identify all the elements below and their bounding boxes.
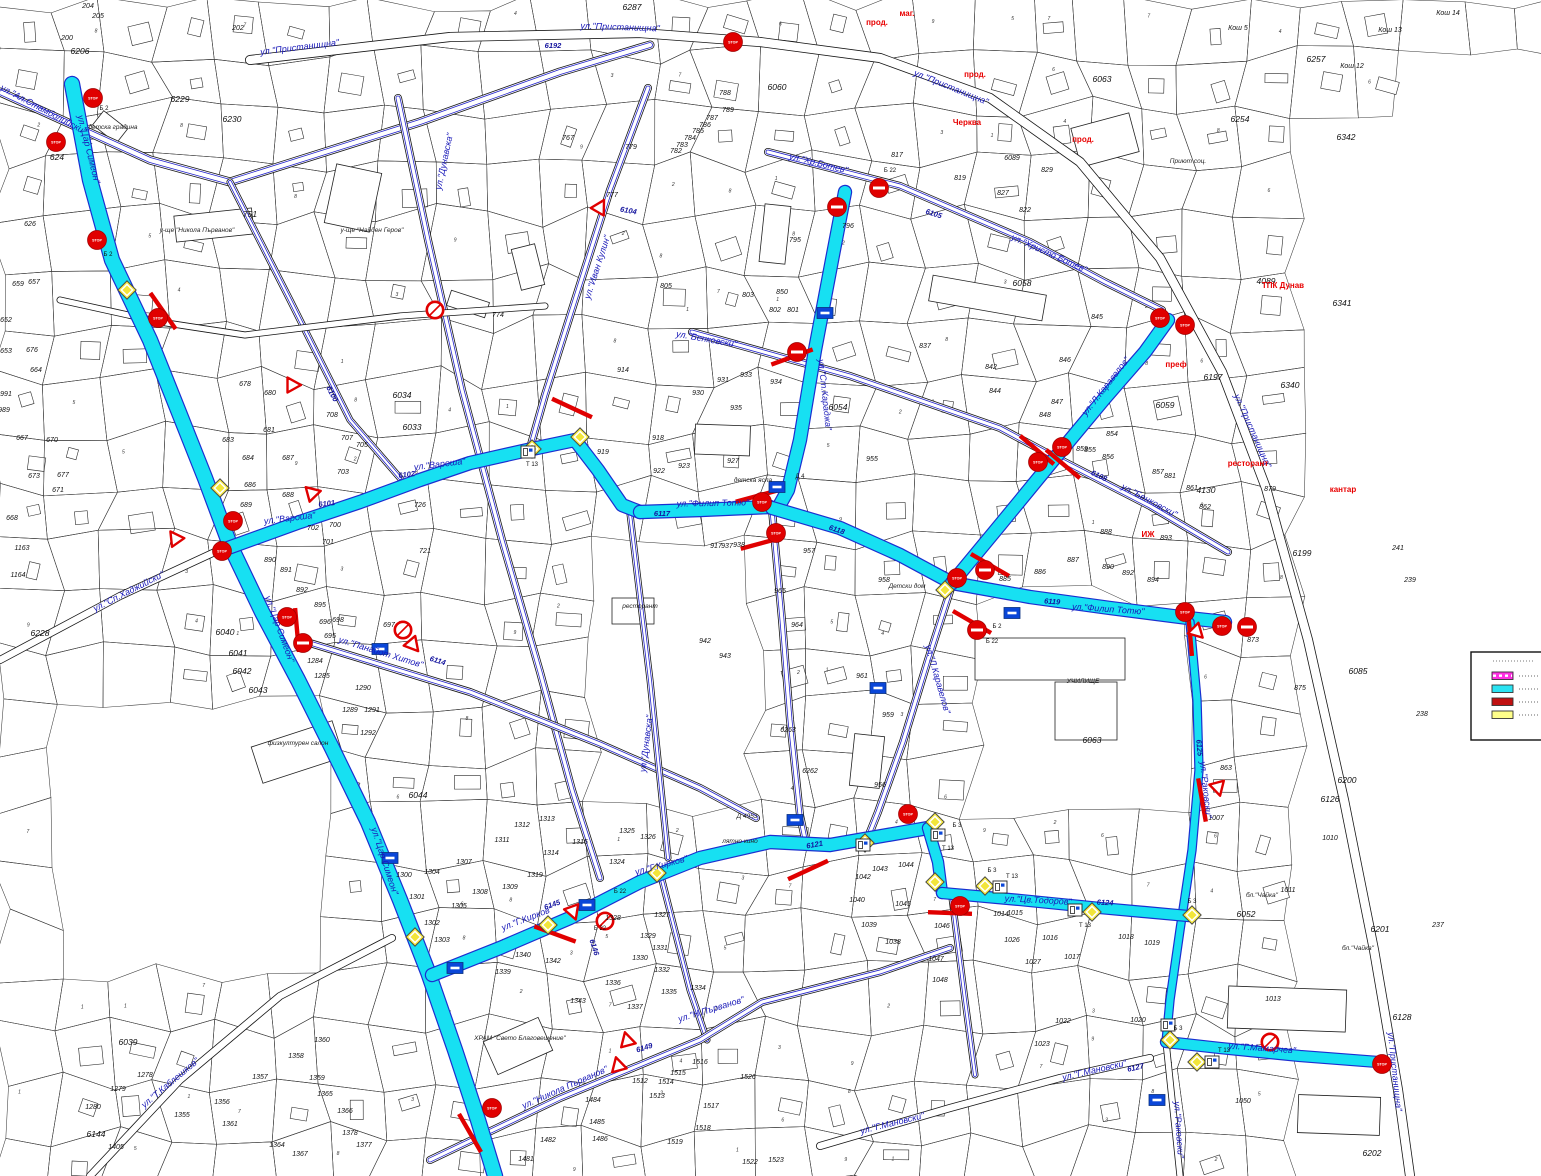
parcel-number: 673	[28, 473, 40, 480]
parcel-number: 933	[740, 372, 752, 379]
house-number: 8	[466, 716, 469, 722]
parcel-number: 1518	[695, 1125, 711, 1132]
direction-sign-icon	[521, 446, 535, 458]
parcel-number: 1334	[690, 985, 706, 992]
block-number: 6342	[1337, 132, 1356, 142]
block-number: 4130	[1197, 485, 1216, 495]
house-number: 1	[1092, 520, 1095, 526]
parcel-number: 1482	[540, 1137, 556, 1144]
house-number: 5	[830, 619, 833, 625]
parcel-number: 892	[296, 587, 308, 594]
parcel-number: 961	[856, 673, 868, 680]
building-footprint	[395, 401, 421, 413]
no-entry-bar	[1241, 626, 1253, 629]
house-number: 7	[1147, 13, 1150, 19]
parcel-number: 767	[562, 135, 575, 142]
parcel-number: 918	[652, 435, 664, 442]
building-footprint	[694, 424, 750, 456]
direction-sign-glyph	[1169, 1022, 1173, 1025]
block-number: 6257	[1307, 54, 1326, 64]
parcel-number: 1022	[1055, 1018, 1071, 1025]
building-footprint	[346, 237, 367, 248]
house-number: 6	[1101, 833, 1104, 839]
house-number: 8	[1280, 575, 1283, 581]
parcel-number: 1016	[1042, 935, 1058, 942]
house-number: 6	[397, 795, 400, 801]
parcel-number: 930	[692, 390, 704, 397]
block-number: 6040	[216, 627, 235, 637]
building-footprint	[561, 1107, 579, 1127]
building-footprint	[1045, 830, 1059, 843]
house-number: 5	[724, 946, 727, 952]
parcel-number: 923	[678, 463, 690, 470]
house-number: 8	[463, 936, 466, 942]
parcel-number: 1359	[309, 1075, 325, 1082]
parcel-number: 239	[1403, 577, 1416, 584]
parcel-number: 803	[742, 292, 754, 299]
building-footprint	[446, 665, 463, 679]
house-number: 7	[933, 897, 936, 903]
parcel-number: 1337	[627, 1004, 644, 1011]
poi-label: Детски дом	[888, 582, 926, 590]
poi-label: УЧИЛИЩЕ	[1066, 678, 1100, 685]
block-number: 6063	[1083, 735, 1102, 745]
parcel-number: 937	[721, 543, 734, 550]
parcel-number: 1481	[518, 1156, 534, 1163]
parcel-number: 893	[1160, 535, 1172, 542]
stop-text: STOP	[153, 316, 163, 320]
direction-sign-glyph	[939, 832, 943, 835]
parcel-number: 819	[954, 175, 966, 182]
parcel-number: 1360	[314, 1037, 330, 1044]
poi-label-red: маг.	[899, 9, 914, 18]
block-number: 6254	[1231, 114, 1250, 124]
house-number: 7	[1147, 882, 1150, 888]
parcel-number: 856	[1102, 454, 1114, 461]
building-footprint	[992, 833, 1008, 845]
direction-sign-icon	[1205, 1056, 1219, 1068]
house-number: 1	[187, 1094, 190, 1100]
parcel-number: 1303	[434, 937, 450, 944]
stop-text: STOP	[1180, 610, 1190, 614]
house-number: 8	[1217, 128, 1220, 134]
stop-text: STOP	[1377, 1062, 1387, 1066]
map-page: 2971787515515814347171789182358938639486…	[0, 0, 1541, 1176]
block-number: 6202	[1363, 1148, 1382, 1158]
parcel-number: 1367	[292, 1151, 309, 1158]
parcel-number: 931	[717, 377, 729, 384]
house-number: 5	[1258, 1092, 1261, 1098]
block-number: 6063	[1093, 74, 1112, 84]
house-number: 2	[1214, 1157, 1218, 1163]
stop-text: STOP	[487, 1106, 497, 1110]
parcel-number: 1526	[740, 1074, 756, 1081]
house-number: 3	[940, 130, 943, 136]
parcel-number: 1330	[632, 955, 648, 962]
stop-text: STOP	[903, 812, 913, 816]
house-number: 2	[621, 231, 625, 237]
stop-sign-icon: STOP	[767, 524, 786, 543]
parcel-number: 1485	[589, 1119, 605, 1126]
parcel-number: 1279	[110, 1086, 126, 1093]
sign-code-label: Т 13	[526, 462, 539, 468]
house-number: 1	[892, 1156, 895, 1162]
parcel-number: 845	[1091, 314, 1103, 321]
poi-label: лятно кино	[721, 838, 758, 845]
house-number: 2	[1053, 820, 1057, 826]
block-number: 6052	[1237, 909, 1256, 919]
poi-label: ХРАМ "Свето Благовещение"	[473, 1035, 566, 1042]
house-number: 9	[573, 1167, 576, 1173]
parcel-number: 1315	[572, 839, 588, 846]
building-footprint	[825, 556, 837, 571]
house-number: 5	[73, 400, 76, 406]
sign-code-label: Т 13	[942, 846, 955, 852]
house-number: 7	[717, 289, 720, 295]
parcel-number: 1039	[861, 922, 877, 929]
parcel-number: 890	[1102, 564, 1114, 571]
no-entry-sign-icon	[1238, 618, 1257, 637]
direction-sign-glyph	[864, 842, 868, 845]
house-number: 4	[195, 619, 198, 625]
legend-cyan-route	[1492, 685, 1513, 693]
parcel-number: 894	[1147, 577, 1159, 584]
parcel-number: 875	[1294, 685, 1306, 692]
info-sign-icon	[447, 963, 463, 974]
parcel-number: 1377	[356, 1142, 373, 1149]
parcel-number: 680	[264, 390, 276, 397]
direction-sign-glyph	[529, 449, 533, 452]
parcel-number: 1326	[640, 834, 656, 841]
house-number: 1	[81, 1004, 84, 1010]
building-footprint	[1269, 126, 1285, 142]
house-number: 3	[611, 73, 614, 79]
parcel-number: 774	[492, 312, 504, 319]
block-number: 6059	[1156, 400, 1175, 410]
building-footprint	[775, 130, 794, 141]
sign-code-label: Б 3	[988, 868, 998, 874]
building-footprint	[189, 184, 201, 204]
house-number: 9	[27, 622, 30, 628]
house-number: 9	[295, 461, 298, 467]
house-number: 1	[609, 1048, 612, 1054]
block-number: 6042	[233, 666, 252, 676]
parcel-number: 1314	[543, 850, 559, 857]
house-number: 6	[944, 795, 947, 801]
parcel-number: 670	[46, 437, 58, 444]
poi-label: детска градина	[88, 123, 137, 131]
parcel-number: 1342	[545, 958, 561, 965]
parcel-number: 6089	[1004, 155, 1020, 162]
building-footprint	[1055, 682, 1117, 740]
block-number: 6200	[1338, 775, 1357, 785]
no-entry-bar	[831, 206, 843, 209]
house-number: 2	[36, 123, 40, 129]
stop-sign-icon: STOP	[149, 309, 168, 328]
parcel-number: 1309	[502, 884, 518, 891]
street-code: 6125	[1194, 739, 1204, 757]
block-number: 6199	[1293, 548, 1312, 558]
sign-code-label: Б 22	[884, 168, 897, 174]
parcel-number: 707	[341, 435, 354, 442]
parcel-number: 964	[791, 622, 803, 629]
house-number: 1	[617, 837, 620, 843]
house-number: 1	[236, 631, 239, 637]
sign-code-label: Б 3	[1188, 899, 1198, 905]
parcel-number: 1307	[456, 859, 473, 866]
parcel-number: 886	[1034, 569, 1046, 576]
building-footprint	[849, 734, 884, 789]
parcel-number: 1038	[885, 939, 901, 946]
parcel-number: 653	[0, 348, 12, 355]
house-number: 9	[580, 144, 583, 150]
house-number: 4	[514, 11, 517, 17]
poi-label: у-ще "Найден Геров"	[340, 226, 405, 234]
parcel-number: 1042	[855, 874, 871, 881]
info-sign-glyph	[583, 904, 592, 907]
house-number: 4	[1063, 119, 1066, 125]
info-sign-glyph	[1153, 1099, 1162, 1102]
parcel-number: 1513	[649, 1093, 665, 1100]
parcel-number: 695	[324, 633, 336, 640]
building-footprint	[290, 1107, 308, 1121]
house-number: 5	[122, 450, 125, 456]
parcel-number: 777	[606, 192, 619, 199]
direction-sign-icon	[931, 829, 945, 841]
block-number: 6058	[1013, 278, 1032, 288]
parcel-number: 1336	[605, 980, 621, 987]
direction-sign-plate	[1205, 1056, 1219, 1068]
building-footprint	[128, 512, 155, 534]
parcel-number: 822	[1019, 207, 1031, 214]
building-footprint	[510, 504, 524, 520]
no-entry-sign-icon	[976, 561, 995, 580]
parcel-number: 846	[1059, 357, 1071, 364]
parcel-number: 827	[997, 190, 1010, 197]
parcel-number: 1017	[1064, 954, 1081, 961]
stop-sign-icon: STOP	[47, 133, 66, 152]
parcel-number: 1280	[85, 1104, 101, 1111]
parcel-number: 817	[891, 152, 904, 159]
poi-label-red: прод.	[964, 70, 986, 79]
house-number: 4	[895, 819, 898, 825]
building-footprint	[1043, 22, 1064, 34]
parcel-number: 667	[16, 435, 29, 442]
house-number: 4	[1210, 889, 1213, 895]
stop-sign-icon: STOP	[1151, 309, 1170, 328]
stop-text: STOP	[51, 140, 61, 144]
sign-code-label: Б 2	[993, 624, 1003, 630]
house-number: 1	[686, 307, 689, 313]
no-entry-sign-icon	[294, 634, 313, 653]
parcel-number: 1301	[409, 894, 425, 901]
parcel-number: 1361	[222, 1121, 238, 1128]
building-footprint	[80, 341, 100, 359]
info-sign-glyph	[874, 687, 883, 690]
street-code: 6124	[1097, 898, 1115, 908]
info-sign-icon	[1149, 1095, 1165, 1106]
house-number: 2	[675, 828, 679, 834]
no-entry-sign-icon	[788, 343, 807, 362]
block-number: 6034	[393, 390, 412, 400]
building-footprint	[342, 724, 358, 734]
stop-sign-icon: STOP	[951, 897, 970, 916]
info-sign-icon	[1004, 608, 1020, 619]
stop-sign-icon: STOP	[1213, 617, 1232, 636]
poi-label: бл."Чайка"	[1246, 891, 1279, 899]
info-sign-glyph	[821, 312, 830, 315]
stop-sign-icon: STOP	[1176, 603, 1195, 622]
parcel-number: 696	[319, 619, 331, 626]
no-entry-bar	[873, 187, 885, 190]
house-number: 9	[454, 237, 457, 243]
building-footprint	[1260, 717, 1276, 736]
block-number: 6085	[1349, 666, 1368, 676]
house-number: 7	[202, 983, 205, 989]
parcel-number: 1324	[609, 859, 625, 866]
parcel-number: 1047	[928, 956, 945, 963]
parcel-number: 202	[231, 25, 244, 32]
parcel-number: 862	[1199, 504, 1211, 511]
building-footprint	[998, 124, 1012, 142]
sign-code-label: Б 22	[614, 889, 627, 895]
stop-text: STOP	[955, 904, 965, 908]
parcel-number: 785	[692, 128, 704, 135]
parcel-number: 1300	[396, 872, 412, 879]
building-footprint	[886, 503, 905, 520]
house-number: 2	[353, 456, 357, 462]
building-footprint	[556, 613, 582, 627]
house-number: 1	[341, 359, 344, 365]
parcel-number: 705	[356, 442, 368, 449]
parcel-number: 881	[1164, 473, 1176, 480]
building-footprint	[1263, 563, 1280, 582]
parcel-number: 1015	[1007, 910, 1023, 917]
house-number: 8	[614, 338, 617, 344]
block-number: 6341	[1333, 298, 1352, 308]
building-footprint	[884, 561, 900, 576]
parcel-number: 1325	[619, 828, 635, 835]
parcel-number: 701	[322, 539, 334, 546]
no-entry-sign-icon	[968, 621, 987, 640]
building-footprint	[837, 612, 850, 631]
stop-text: STOP	[228, 519, 238, 523]
building-footprint	[186, 124, 206, 140]
house-number: 3	[570, 951, 573, 957]
parcel-number: 708	[326, 412, 338, 419]
parcel-number: 795	[789, 237, 801, 244]
house-number: 2	[898, 410, 902, 416]
building-footprint	[886, 670, 902, 683]
block-number: 6230	[223, 114, 242, 124]
parcel-number: 205	[91, 13, 104, 20]
parcel-number: 895	[314, 602, 326, 609]
parcel-number: 1355	[174, 1112, 190, 1119]
parcel-number: 6263	[780, 727, 796, 734]
parcel-number: 1329	[640, 933, 656, 940]
stop-sign-icon: STOP	[84, 89, 103, 108]
parcel-number: 787	[706, 115, 719, 122]
stop-text: STOP	[771, 531, 781, 535]
building-footprint	[122, 1096, 141, 1117]
house-number: 7	[1048, 16, 1051, 22]
poi-label-red: прод.	[1072, 135, 1094, 144]
parcel-number: 914	[617, 367, 629, 374]
building-footprint	[500, 782, 514, 798]
house-number: 4	[680, 1058, 683, 1064]
parcel-number: 935	[730, 405, 742, 412]
house-number: 5	[148, 233, 151, 239]
parcel-number: 1378	[342, 1130, 358, 1137]
building-footprint	[1261, 295, 1282, 315]
parcel-number: 1332	[654, 967, 670, 974]
building-footprint	[460, 507, 482, 517]
building-footprint	[71, 1161, 87, 1176]
building-footprint	[673, 341, 689, 353]
house-number: 9	[932, 19, 935, 25]
parcel-number: 796	[842, 223, 854, 230]
building-footprint	[663, 289, 685, 307]
parcel-number: 1010	[1322, 835, 1338, 842]
poi-label: бл."Чайка"	[1342, 944, 1375, 952]
parcel-number: 957	[803, 548, 816, 555]
parcel-number: 1364	[269, 1142, 285, 1149]
parcel-number: 6262	[802, 768, 818, 775]
block-number: 6201	[1371, 924, 1390, 934]
parcel-number: 726	[414, 502, 426, 509]
stop-text: STOP	[1180, 323, 1190, 327]
legend-yellow-route	[1492, 711, 1513, 719]
direction-sign-icon	[993, 881, 1007, 893]
block-number: 6039	[119, 1037, 138, 1047]
building-footprint	[454, 775, 480, 789]
block-number: 6287	[623, 2, 642, 12]
house-number: 3	[1105, 1118, 1108, 1124]
parcel-number: 1023	[1034, 1041, 1050, 1048]
parcel-number: 1522	[742, 1159, 758, 1166]
no-entry-bar	[791, 351, 803, 354]
building-footprint	[79, 1046, 104, 1066]
house-number: 1	[18, 1089, 21, 1095]
parcel-number: 671	[52, 487, 64, 494]
building-footprint	[1321, 72, 1343, 92]
block-number: 6060	[768, 82, 787, 92]
parcel-number: 784	[684, 135, 696, 142]
building-footprint	[190, 78, 203, 89]
parcel-number: 801	[787, 307, 799, 314]
house-number: 1	[991, 133, 994, 139]
stop-text: STOP	[757, 500, 767, 504]
house-number: 8	[659, 253, 662, 259]
parcel-number: 1343	[570, 998, 586, 1005]
building-footprint	[939, 780, 965, 800]
parcel-number: 1305	[451, 903, 467, 910]
house-number: 2	[886, 1003, 890, 1009]
parcel-number: 1308	[472, 889, 488, 896]
poi-label-red: ТПК Дунав	[1262, 281, 1304, 290]
poi-label-red: кантар	[1330, 485, 1357, 494]
parcel-number: 805	[660, 283, 672, 290]
parcel-number: 1050	[1235, 1098, 1251, 1105]
parcel-number: 844	[989, 388, 1001, 395]
parcel-number: 1026	[1004, 937, 1020, 944]
parcel-number: 1289	[342, 707, 358, 714]
building-footprint	[24, 22, 36, 42]
house-number: 8	[729, 188, 732, 194]
house-number: 7	[789, 884, 792, 890]
stop-sign-icon: STOP	[1176, 316, 1195, 335]
parcel-number: 1356	[214, 1099, 230, 1106]
